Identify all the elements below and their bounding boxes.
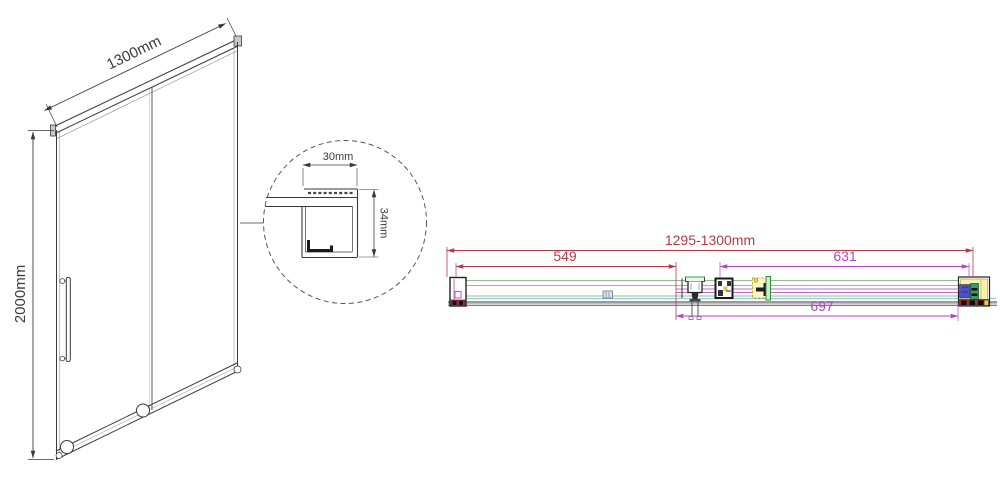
rail-foot-left xyxy=(56,453,62,459)
front-height-label: 2000mm xyxy=(12,265,29,323)
plan-left-segment-label: 549 xyxy=(553,248,577,264)
door-handle xyxy=(60,278,70,362)
dimension-plan-overall: 1295-1300mm xyxy=(447,232,973,277)
plan-top-view: 1295-1300mm 549 631 697 xyxy=(447,232,997,321)
door-bottom-rail xyxy=(56,363,241,460)
drawing-canvas: 1300mm xyxy=(0,0,1000,481)
plan-right-segment-label: 631 xyxy=(833,248,857,264)
plan-overall-label: 1295-1300mm xyxy=(665,232,755,248)
dimension-plan-left-segment: 549 xyxy=(456,248,676,320)
dimension-plan-right-segment: 631 xyxy=(720,248,969,278)
rail-foot-right xyxy=(234,366,241,373)
plan-bottom-segment-label: 697 xyxy=(810,298,834,314)
dimension-front-height: 2000mm xyxy=(12,131,54,460)
door-frame-edges xyxy=(57,42,238,459)
dimension-front-width: 1300mm xyxy=(45,18,239,127)
mounting-bracket xyxy=(716,279,733,299)
dimension-detail-height: 34mm xyxy=(359,190,390,258)
dimension-detail-width: 30mm xyxy=(303,151,357,186)
detail-rail-profile xyxy=(265,189,358,258)
glass-panel-divider xyxy=(150,88,152,411)
guide-block xyxy=(753,277,771,301)
roller-wheel-left xyxy=(61,441,74,454)
wall-profile-right xyxy=(958,277,990,306)
front-elevation-view: 1300mm xyxy=(12,18,427,460)
technical-drawing-page: 1300mm xyxy=(0,0,1000,481)
glass-clip xyxy=(603,291,613,298)
detail-height-label: 34mm xyxy=(378,208,390,239)
roller-wheel-middle xyxy=(137,404,150,417)
wall-profile-left xyxy=(450,278,466,307)
profile-inner-bracket xyxy=(309,240,332,251)
detail-width-label: 30mm xyxy=(323,151,354,163)
